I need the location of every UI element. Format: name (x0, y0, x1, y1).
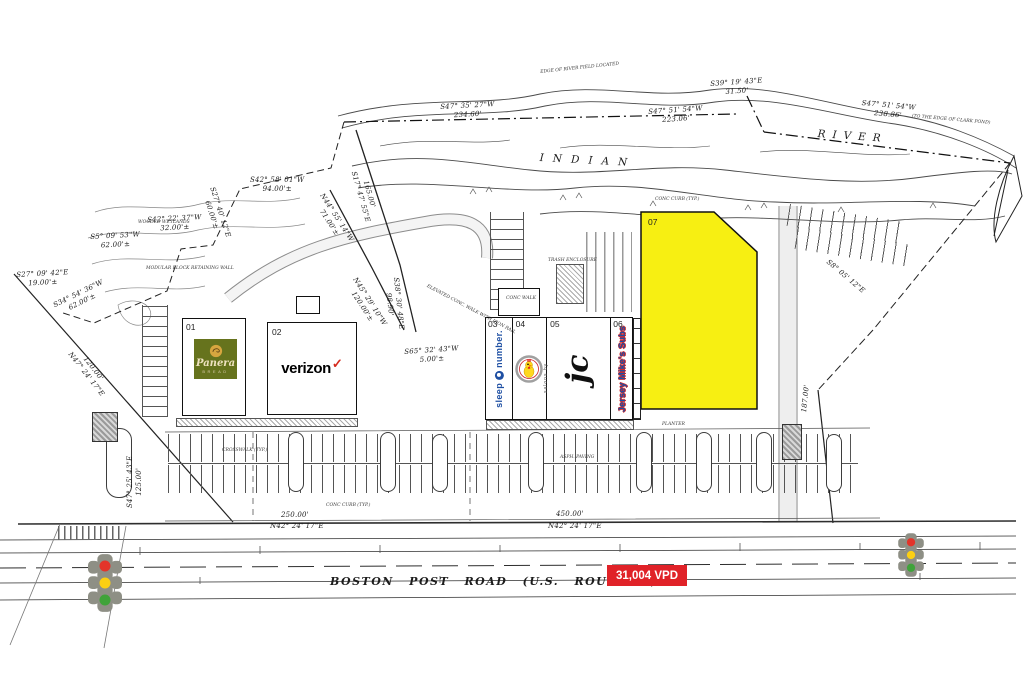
unit-05-salons-by-jc: 05 jc salons by (547, 318, 611, 419)
parking-island (380, 432, 396, 492)
annotation: TRASH ENCLOSURE (548, 258, 597, 263)
unit-number-07: 07 (648, 217, 657, 227)
parking-island (636, 432, 652, 492)
mother-bread-icon (209, 344, 223, 358)
unit-number: 05 (550, 319, 559, 329)
traffic-count-value: 31,004 VPD (616, 570, 678, 582)
sleep-label: sleep (494, 382, 504, 407)
rear-canopy (498, 288, 540, 316)
rear-parking-stripes (586, 232, 632, 312)
parking-island (696, 432, 712, 492)
panera-bread-label: BREAD (202, 370, 228, 374)
utility-pad (92, 412, 118, 442)
parking-row-upper (168, 434, 858, 462)
jersey-mikes-label: Jersey Mike's Subs (617, 325, 627, 411)
utility-pad (782, 424, 802, 460)
parking-row-lower (168, 465, 858, 493)
trash-enclosure (556, 264, 584, 304)
number-label: number. (494, 330, 504, 368)
panera-logo: Panera BREAD (194, 339, 237, 379)
front-walk-hatch (176, 418, 358, 427)
checkmark-icon: ✓ (332, 356, 343, 372)
verizon-label: verizon (281, 360, 331, 377)
service-corridor (633, 318, 641, 420)
unit-number: 04 (516, 319, 525, 329)
unit-number-02: 02 (272, 327, 281, 337)
annotation: CROSSWALK (TYP.) (222, 448, 267, 453)
marsh-tufts (470, 187, 936, 212)
dimension-label: 250.00' (281, 511, 309, 520)
unit-number: 03 (488, 319, 497, 329)
front-walk-hatch (486, 420, 634, 430)
rear-pad (296, 296, 320, 314)
annotation: CONC CURB (TYP.) (326, 503, 370, 508)
traffic-light-left-icon (88, 552, 122, 618)
annotation: MODULAR BLOCK RETAINING WALL (146, 266, 234, 271)
parking-island (826, 434, 842, 492)
traffic-light-right-icon (898, 532, 924, 582)
panera-script-label: Panera (196, 359, 235, 369)
bearing-label: S47° 35' 27"W 234.60' (440, 100, 495, 120)
annotation: ASPH. PAVING (560, 455, 594, 460)
unit-number: 06 (613, 319, 622, 329)
annotation: CONC CURB (TYP.) (655, 197, 699, 202)
parking-island (432, 434, 448, 492)
bearing-label: S42° 58' 01"W 94.00'± (250, 176, 304, 194)
parking-island (756, 432, 772, 492)
strip-building: 03 sleep number. 04 (485, 317, 633, 420)
bearing-label: S39° 19' 43"E 31.50' (710, 76, 763, 97)
unit-04-chicken: 04 (513, 318, 548, 419)
sleep-number-logo: sleep number. (486, 318, 512, 419)
jc-logo: jc (564, 354, 594, 383)
unit-03-sleep-number: 03 sleep number. (486, 318, 513, 419)
unit-06-jersey-mikes: 06 Jersey Mike's Subs (611, 318, 632, 419)
site-plan-canvas: Panera BREAD verizon ✓ 03 sleep number. … (0, 0, 1024, 700)
parking-island (288, 432, 304, 492)
bearing-label: N42° 24' 17"E (270, 522, 324, 531)
annotation: PLANTER (662, 422, 685, 427)
unit-number-01: 01 (186, 322, 195, 332)
salons-by-label: salons by (543, 363, 549, 393)
chicken-mascot-icon (515, 355, 543, 383)
dimension-label: 450.00' (556, 510, 584, 519)
bearing-label: S47° 25' 43"E 125.00' (126, 456, 144, 508)
pond-edge (994, 156, 1022, 242)
west-parking-column (142, 305, 168, 417)
circle-badge-icon (494, 370, 503, 379)
parking-row-divider (168, 463, 858, 464)
bearing-label: N42° 24' 17"E (548, 522, 602, 531)
parcel-07-highlight (641, 212, 757, 409)
annotation: CONC WALK (506, 296, 536, 301)
parking-island (528, 432, 544, 492)
building-01-panera: Panera BREAD (182, 318, 246, 416)
bearing-label: S27° 09' 42"E 19.00'± (16, 268, 69, 288)
annotation: WOODED WETLANDS (138, 220, 190, 225)
bearing-label: S5° 09' 53"W 62.00'± (90, 230, 141, 250)
crosswalk-ticks (58, 526, 122, 540)
traffic-count-badge: 31,004 VPD (607, 565, 687, 586)
